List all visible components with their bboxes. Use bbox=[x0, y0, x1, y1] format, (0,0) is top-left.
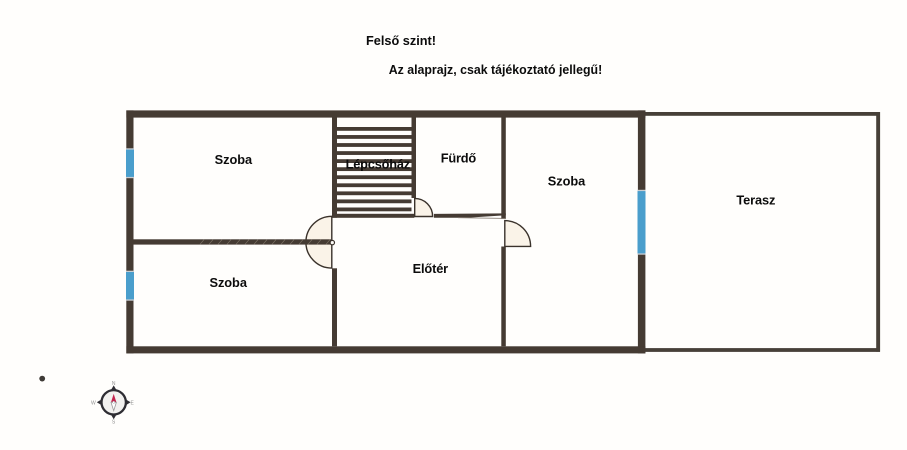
svg-text:Az alaprajz, csak tájékoztató: Az alaprajz, csak tájékoztató jellegű! bbox=[389, 62, 603, 77]
svg-text:Felső szint!: Felső szint! bbox=[366, 33, 436, 48]
svg-text:Szoba: Szoba bbox=[548, 173, 586, 188]
svg-text:Lépcsőház: Lépcsőház bbox=[346, 156, 411, 171]
svg-text:W: W bbox=[91, 400, 96, 406]
svg-text:Előtér: Előtér bbox=[413, 261, 449, 276]
svg-text:Szoba: Szoba bbox=[209, 275, 247, 290]
svg-text:Fürdő: Fürdő bbox=[441, 150, 477, 165]
svg-text:Terasz: Terasz bbox=[736, 193, 775, 208]
svg-text:Szoba: Szoba bbox=[215, 152, 253, 167]
svg-text:N: N bbox=[112, 381, 116, 387]
